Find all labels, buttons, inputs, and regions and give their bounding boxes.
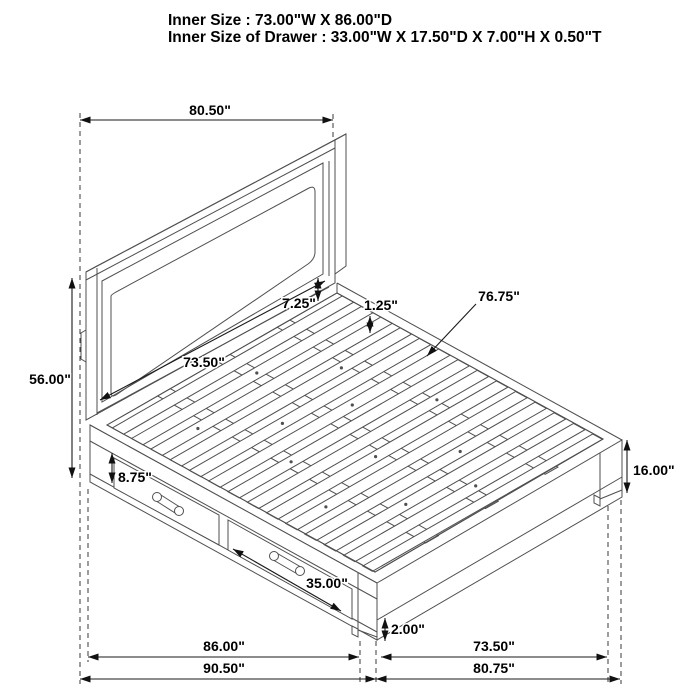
- dim-platform-height-label: 16.00": [633, 462, 675, 478]
- handle-end-cap: [296, 567, 305, 576]
- headboard-side-face: [335, 134, 346, 274]
- slat-hole: [351, 403, 354, 406]
- dim-outer-depth-label: 90.50": [203, 660, 245, 676]
- handle-end-cap: [153, 493, 162, 502]
- slat-hole: [374, 455, 377, 458]
- bed-dimension-diagram: Inner Size : 73.00"W X 86.00"D Inner Siz…: [0, 0, 700, 700]
- dim-foot-clearance-label: 2.00": [391, 621, 425, 637]
- dim-slat-length-leader: [427, 304, 476, 356]
- slat-hole: [404, 503, 407, 506]
- dim-panel-gap-label: 7.25": [282, 295, 316, 311]
- dim-slat-length-label: 76.75": [478, 288, 520, 304]
- inner-size-label: Inner Size : 73.00"W X 86.00"D: [168, 12, 392, 29]
- slat-hole: [290, 460, 293, 463]
- handle-end-cap: [270, 552, 279, 561]
- slat-hole: [435, 398, 438, 401]
- handle-end-cap: [175, 507, 184, 516]
- slat-hole: [340, 366, 343, 369]
- dim-slat-recess-label: 1.25": [364, 297, 398, 313]
- dim-drawer-front-height-label: 8.75": [118, 469, 152, 485]
- dim-footboard-width-label: 80.75": [473, 660, 515, 676]
- dim-inner-depth-label: 86.00": [203, 638, 245, 654]
- slat-hole: [281, 422, 284, 425]
- slat-hole: [459, 450, 462, 453]
- slat-hole: [474, 484, 477, 487]
- slat-hole: [255, 371, 258, 374]
- dim-headboard-height-label: 56.00": [29, 371, 71, 387]
- inner-drawer-size-label: Inner Size of Drawer : 33.00"W X 17.50"D…: [168, 29, 602, 46]
- slat-hole: [324, 505, 327, 508]
- diagram-canvas: Inner Size : 73.00"W X 86.00"D Inner Siz…: [0, 0, 700, 700]
- dim-footboard-inner-width-label: 73.50": [473, 638, 515, 654]
- slat-hole: [196, 427, 199, 430]
- dim-headboard-width-label: 80.50": [189, 102, 231, 118]
- dim-drawer-width-label: 35.00": [306, 575, 348, 591]
- headboard-left-post-notch: [81, 330, 86, 362]
- dim-headboard-inner-width-label: 73.50": [183, 354, 225, 370]
